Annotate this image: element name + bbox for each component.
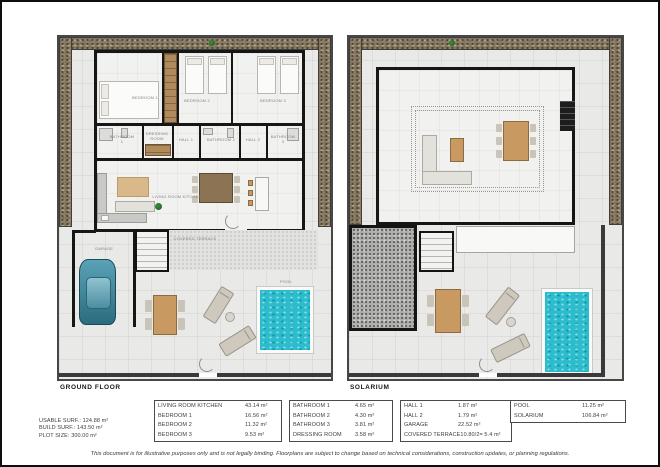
corner-sofa bbox=[422, 171, 472, 185]
legend-row: BATHROOM 24.30 m² bbox=[290, 412, 392, 422]
summary-row: USABLE SURF.: 124.88 m² bbox=[39, 418, 108, 425]
sofa bbox=[115, 201, 155, 212]
kitchen-sink bbox=[101, 215, 109, 221]
chair bbox=[234, 176, 240, 183]
chair bbox=[427, 314, 434, 326]
room-label-covered-terrace: COVERED TERRACE bbox=[173, 237, 217, 242]
legend-value: 4.65 m² bbox=[355, 402, 389, 412]
stool bbox=[248, 190, 253, 196]
legend-row: LIVING ROOM KITCHEN43.14 m² bbox=[155, 402, 281, 412]
ground-floor-plan: BEDROOM 1 BEDROOM 2 BEDROOM 3 BATHROOM 1… bbox=[57, 35, 333, 381]
legend-value: 11.25 m² bbox=[582, 402, 622, 412]
plant bbox=[209, 40, 215, 46]
gate-arc bbox=[199, 356, 215, 372]
wall bbox=[97, 158, 302, 161]
boundary-wall bbox=[59, 373, 331, 377]
gravel-border bbox=[59, 37, 331, 50]
gate-arc bbox=[479, 356, 495, 372]
legend-value: 1.87 m² bbox=[458, 402, 508, 412]
pool bbox=[542, 289, 592, 375]
ground-floor-title: GROUND FLOOR bbox=[60, 384, 121, 391]
summary-label: BUILD SURF.: bbox=[39, 425, 77, 431]
legend-label: GARAGE bbox=[404, 421, 458, 431]
door-arc bbox=[225, 213, 241, 229]
legend-label: BATHROOM 1 bbox=[293, 402, 355, 412]
gate-opening bbox=[479, 373, 497, 377]
legend-label: BEDROOM 1 bbox=[158, 412, 245, 422]
summary-value: 300.00 m² bbox=[71, 433, 97, 439]
legend-label: SOLARIUM bbox=[514, 412, 582, 422]
side-table bbox=[506, 317, 516, 327]
sun-lounger bbox=[218, 325, 256, 357]
legend-label: BEDROOM 2 bbox=[158, 421, 245, 431]
wardrobe bbox=[164, 53, 177, 123]
outdoor-dining-table bbox=[153, 295, 177, 335]
pool-label: POOL bbox=[271, 280, 301, 285]
legend-label: HALL 1 bbox=[404, 402, 458, 412]
wall bbox=[72, 230, 96, 233]
legend-value: 11.32 m² bbox=[245, 421, 278, 431]
legend-table-pool: POOL11.25 m² SOLARIUM106.84 m² bbox=[510, 400, 626, 423]
wall bbox=[231, 53, 233, 123]
legend-label: POOL bbox=[514, 402, 582, 412]
room-label-hall1: HALL 1 bbox=[174, 138, 198, 143]
pillow bbox=[210, 58, 225, 65]
chair bbox=[192, 176, 198, 183]
legend-row: BEDROOM 39.53 m² bbox=[155, 431, 281, 441]
legend-label: COVERED TERRACE bbox=[404, 431, 460, 441]
legend-row: BATHROOM 33.81 m² bbox=[290, 421, 392, 431]
wall bbox=[239, 125, 241, 158]
chair bbox=[145, 318, 152, 330]
outdoor-dining-table bbox=[435, 289, 461, 333]
legend-value: 43.14 m² bbox=[245, 402, 278, 412]
legend-value: 3.58 m² bbox=[355, 431, 389, 441]
legend-value: 4.30 m² bbox=[355, 412, 389, 422]
chair bbox=[234, 196, 240, 203]
summary-value: 143.50 m² bbox=[77, 425, 103, 431]
wall bbox=[177, 53, 179, 123]
wall bbox=[199, 125, 201, 158]
pillow bbox=[282, 58, 297, 65]
legend-row: BEDROOM 116.56 m² bbox=[155, 412, 281, 422]
chair bbox=[145, 300, 152, 312]
legend-label: BATHROOM 2 bbox=[293, 412, 355, 422]
sun-lounger bbox=[490, 333, 531, 363]
legend-row: BEDROOM 211.32 m² bbox=[155, 421, 281, 431]
chair bbox=[462, 295, 469, 307]
summary-row: BUILD SURF.: 143.50 m² bbox=[39, 425, 108, 432]
room-label-bathroom1: BATHROOM 1 bbox=[109, 135, 135, 144]
gravel-border bbox=[318, 37, 331, 227]
bbq-unit bbox=[560, 101, 575, 131]
stool bbox=[248, 200, 253, 206]
chair bbox=[530, 124, 536, 132]
legend-value: 10.80/2= 5.4 m² bbox=[460, 431, 508, 441]
summary-label: PLOT SIZE: bbox=[39, 433, 71, 439]
plant bbox=[155, 203, 162, 210]
room-label-hall2: HALL 2 bbox=[242, 138, 264, 143]
pool bbox=[257, 287, 313, 353]
dining-table bbox=[503, 121, 529, 161]
chair bbox=[178, 318, 185, 330]
room-label-bedroom2: BEDROOM 2 bbox=[179, 99, 215, 104]
legend-label: HALL 2 bbox=[404, 412, 458, 422]
wall bbox=[72, 230, 75, 327]
boundary-wall bbox=[349, 373, 605, 377]
chair bbox=[192, 186, 198, 193]
surface-summary: USABLE SURF.: 124.88 m² BUILD SURF.: 143… bbox=[39, 418, 108, 440]
legend-row: GARAGE22.52 m² bbox=[401, 421, 511, 431]
legend-value: 106.84 m² bbox=[582, 412, 622, 422]
room-label-bedroom3: BEDROOM 3 bbox=[255, 99, 291, 104]
legend-table-halls: HALL 11.87 m² HALL 21.79 m² GARAGE22.52 … bbox=[400, 400, 512, 442]
legend-label: BEDROOM 3 bbox=[158, 431, 245, 441]
room-label-living: LIVING ROOM KITCHEN bbox=[137, 195, 217, 200]
chair bbox=[530, 150, 536, 158]
chair bbox=[496, 124, 502, 132]
pillow bbox=[259, 58, 274, 65]
summary-row: PLOT SIZE: 300.00 m² bbox=[39, 433, 108, 440]
kitchen-island bbox=[255, 177, 269, 211]
legend-row: POOL11.25 m² bbox=[511, 402, 625, 412]
stool bbox=[248, 180, 253, 186]
legend-table-rooms: LIVING ROOM KITCHEN43.14 m² BEDROOM 116.… bbox=[154, 400, 282, 442]
legend-label: DRESSING ROOM bbox=[293, 431, 355, 441]
chair bbox=[496, 150, 502, 158]
dressing-wardrobe bbox=[145, 144, 171, 156]
legend-value: 16.56 m² bbox=[245, 412, 278, 422]
legend-label: LIVING ROOM KITCHEN bbox=[158, 402, 245, 412]
pillow bbox=[101, 101, 109, 116]
gravel-border bbox=[59, 37, 72, 227]
coffee-table bbox=[450, 138, 464, 162]
wall bbox=[142, 125, 144, 158]
legend-label: BATHROOM 3 bbox=[293, 421, 355, 431]
legend-row: SOLARIUM106.84 m² bbox=[511, 412, 625, 422]
garage-roof bbox=[349, 225, 417, 331]
summary-value: 124.88 m² bbox=[83, 418, 109, 424]
pillow bbox=[187, 58, 202, 65]
rug bbox=[117, 177, 149, 197]
chair bbox=[496, 137, 502, 145]
staircase bbox=[135, 230, 169, 272]
staircase bbox=[419, 231, 454, 272]
legend-row: HALL 21.79 m² bbox=[401, 412, 511, 422]
gravel-border bbox=[609, 37, 622, 225]
legend-value: 1.79 m² bbox=[458, 412, 508, 422]
legend-row: COVERED TERRACE10.80/2= 5.4 m² bbox=[401, 431, 511, 441]
car-roof bbox=[86, 277, 111, 309]
disclaimer-text: This document is for illustrative purpos… bbox=[2, 451, 658, 457]
side-table bbox=[225, 312, 235, 322]
gravel-border bbox=[349, 37, 362, 225]
summary-label: USABLE SURF.: bbox=[39, 418, 83, 424]
solarium-title: SOLARIUM bbox=[350, 384, 389, 391]
plant bbox=[449, 40, 455, 46]
legend-row: HALL 11.87 m² bbox=[401, 402, 511, 412]
legend-value: 22.52 m² bbox=[458, 421, 508, 431]
room-label-garage: GARAGE bbox=[89, 247, 119, 252]
chair bbox=[462, 314, 469, 326]
sink bbox=[203, 128, 213, 135]
terrace-roof bbox=[456, 226, 575, 253]
chair bbox=[427, 295, 434, 307]
floorplan-sheet: BEDROOM 1 BEDROOM 2 BEDROOM 3 BATHROOM 1… bbox=[0, 0, 660, 467]
room-label-bathroom3: BATHROOM 3 bbox=[270, 135, 296, 144]
gravel-border bbox=[349, 37, 622, 50]
car bbox=[79, 259, 116, 325]
legend-value: 9.53 m² bbox=[245, 431, 278, 441]
boundary-wall bbox=[601, 225, 605, 375]
gate-opening bbox=[199, 373, 217, 377]
legend-table-bathrooms: BATHROOM 14.65 m² BATHROOM 24.30 m² BATH… bbox=[289, 400, 393, 442]
wall bbox=[266, 125, 268, 158]
chair bbox=[178, 300, 185, 312]
room-label-bedroom1: BEDROOM 1 bbox=[125, 96, 165, 101]
solarium-plan bbox=[347, 35, 624, 381]
room-label-bathroom2: BATHROOM 2 bbox=[204, 138, 238, 143]
pillow bbox=[101, 84, 109, 99]
legend-value: 3.81 m² bbox=[355, 421, 389, 431]
chair bbox=[530, 137, 536, 145]
chair bbox=[234, 186, 240, 193]
room-label-dressing: DRESSING ROOM bbox=[144, 132, 170, 141]
legend-row: BATHROOM 14.65 m² bbox=[290, 402, 392, 412]
legend-row: DRESSING ROOM3.58 m² bbox=[290, 431, 392, 441]
